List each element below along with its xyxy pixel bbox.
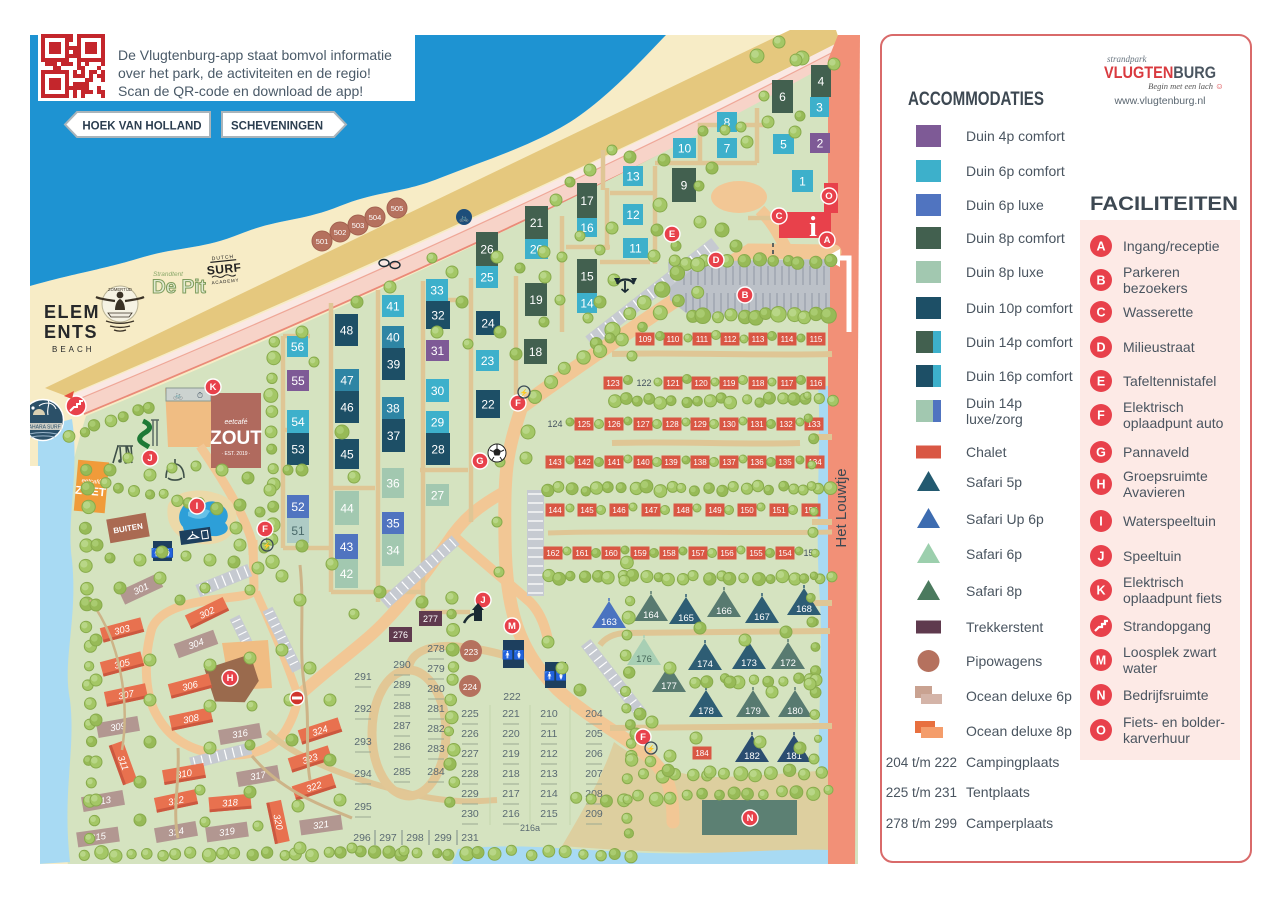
svg-text:I: I: [1099, 515, 1102, 529]
svg-text:E: E: [1097, 375, 1105, 389]
svg-text:204 t/m 222: 204 t/m 222: [886, 755, 957, 770]
svg-text:45: 45: [340, 448, 354, 462]
svg-text:505: 505: [391, 204, 404, 213]
svg-text:159: 159: [633, 549, 647, 558]
svg-text:C: C: [776, 211, 783, 222]
svg-text:140: 140: [636, 458, 650, 467]
svg-text:39: 39: [387, 358, 401, 372]
svg-text:295: 295: [354, 801, 372, 813]
svg-text:54: 54: [291, 415, 305, 429]
svg-text:D: D: [713, 255, 720, 266]
svg-text:14: 14: [580, 297, 594, 311]
svg-text:176: 176: [636, 654, 652, 665]
svg-text:283: 283: [427, 743, 445, 755]
svg-text:N: N: [747, 813, 754, 824]
svg-text:C: C: [1096, 306, 1105, 320]
svg-text:24: 24: [481, 317, 495, 331]
svg-text:290: 290: [393, 659, 411, 671]
svg-text:4: 4: [818, 75, 825, 89]
svg-text:6: 6: [779, 90, 786, 104]
svg-text:207: 207: [585, 768, 603, 780]
svg-text:219: 219: [502, 748, 520, 760]
svg-text:122: 122: [636, 378, 651, 388]
svg-text:ENTS: ENTS: [44, 322, 98, 342]
svg-text:Campingplaats: Campingplaats: [966, 754, 1059, 770]
svg-text:Pipowagens: Pipowagens: [966, 653, 1042, 669]
svg-text:I: I: [196, 501, 199, 512]
svg-text:12: 12: [626, 208, 640, 222]
svg-text:Ocean deluxe 8p: Ocean deluxe 8p: [966, 723, 1072, 739]
svg-text:Tafeltennistafel: Tafeltennistafel: [1123, 373, 1216, 389]
svg-text:135: 135: [778, 458, 792, 467]
svg-text:130: 130: [722, 420, 736, 429]
svg-text:Milieustraat: Milieustraat: [1123, 339, 1195, 355]
svg-text:299: 299: [434, 832, 452, 844]
svg-text:F: F: [515, 398, 521, 409]
svg-text:46: 46: [340, 401, 354, 415]
svg-text:B: B: [1096, 274, 1105, 288]
svg-text:168: 168: [796, 604, 812, 615]
svg-text:114: 114: [781, 335, 794, 344]
svg-text:224: 224: [463, 682, 477, 692]
svg-text:209: 209: [585, 808, 603, 820]
svg-text:Safari 6p: Safari 6p: [966, 546, 1022, 562]
svg-text:166: 166: [716, 606, 732, 617]
svg-text:288: 288: [393, 700, 411, 712]
svg-text:214: 214: [540, 788, 558, 800]
svg-text:🚹🚺: 🚹🚺: [502, 649, 524, 660]
svg-text:Safari Up 6p: Safari Up 6p: [966, 511, 1044, 527]
svg-text:2: 2: [817, 137, 824, 151]
svg-text:285: 285: [393, 766, 411, 778]
svg-text:M: M: [508, 621, 516, 632]
svg-text:296: 296: [353, 832, 371, 844]
svg-text:213: 213: [540, 768, 558, 780]
svg-text:i: i: [809, 212, 817, 243]
svg-text:eetcafé: eetcafé: [225, 419, 248, 426]
svg-text:279: 279: [427, 663, 445, 675]
svg-text:162: 162: [546, 549, 560, 558]
svg-text:145: 145: [580, 506, 594, 515]
svg-text:D: D: [1096, 341, 1105, 355]
svg-text:Chalet: Chalet: [966, 444, 1007, 460]
svg-text:Duin 16p comfort: Duin 16p comfort: [966, 368, 1073, 384]
svg-text:Het Louwtje: Het Louwtje: [833, 468, 850, 547]
svg-text:128: 128: [665, 420, 679, 429]
svg-text:3: 3: [816, 101, 823, 115]
svg-text:123: 123: [606, 379, 620, 388]
svg-text:🚲: 🚲: [173, 391, 183, 400]
svg-text:177: 177: [661, 681, 677, 692]
svg-text:298: 298: [406, 832, 424, 844]
svg-text:Ocean deluxe 6p: Ocean deluxe 6p: [966, 688, 1072, 704]
svg-text:Elektrisch: Elektrisch: [1123, 574, 1184, 590]
svg-text:G: G: [476, 456, 483, 467]
svg-text:Avavieren: Avavieren: [1123, 484, 1185, 500]
svg-text:131: 131: [750, 420, 764, 429]
svg-text:284: 284: [427, 766, 445, 778]
svg-text:125: 125: [577, 420, 591, 429]
svg-text:Safari 8p: Safari 8p: [966, 583, 1022, 599]
svg-text:17: 17: [580, 194, 594, 208]
svg-text:35: 35: [386, 517, 400, 531]
svg-text:116: 116: [810, 379, 823, 388]
svg-text:F: F: [640, 732, 646, 743]
svg-text:223: 223: [464, 647, 478, 657]
svg-text:109: 109: [638, 335, 652, 344]
svg-text:B: B: [742, 290, 749, 301]
svg-text:FACILITEITEN: FACILITEITEN: [1090, 193, 1238, 215]
svg-text:Strandopgang: Strandopgang: [1123, 618, 1211, 634]
svg-text:147: 147: [644, 506, 658, 515]
svg-text:321: 321: [312, 819, 329, 832]
svg-text:N: N: [1096, 689, 1105, 703]
svg-text:41: 41: [386, 300, 400, 314]
svg-text:218: 218: [502, 768, 520, 780]
svg-text:157: 157: [691, 549, 705, 558]
svg-text:De Pit: De Pit: [152, 277, 207, 298]
svg-text:47: 47: [340, 374, 354, 388]
svg-text:Trekkerstent: Trekkerstent: [966, 619, 1043, 635]
svg-text:Tentplaats: Tentplaats: [966, 784, 1030, 800]
svg-text:281: 281: [427, 703, 445, 715]
svg-text:230: 230: [461, 808, 479, 820]
svg-text:160: 160: [604, 549, 618, 558]
svg-text:ZOUT: ZOUT: [210, 428, 262, 449]
svg-text:ZOMERTIJD: ZOMERTIJD: [108, 287, 132, 292]
svg-text:502: 502: [334, 228, 347, 237]
svg-text:293: 293: [354, 736, 372, 748]
svg-text:Speeltuin: Speeltuin: [1123, 548, 1181, 564]
svg-text:H: H: [1096, 478, 1105, 492]
svg-text:117: 117: [781, 379, 794, 388]
svg-text:⏱: ⏱: [197, 391, 203, 400]
svg-text:⚡: ⚡: [647, 744, 656, 753]
svg-text:Safari 5p: Safari 5p: [966, 474, 1022, 490]
svg-text:172: 172: [780, 658, 796, 669]
svg-text:ELEM: ELEM: [44, 302, 100, 322]
svg-text:151: 151: [772, 506, 786, 515]
svg-text:52: 52: [291, 500, 305, 514]
svg-text:231: 231: [461, 832, 479, 844]
svg-text:19: 19: [529, 293, 543, 307]
svg-text:40: 40: [386, 331, 400, 345]
svg-text:161: 161: [575, 549, 589, 558]
svg-text:167: 167: [754, 612, 770, 623]
svg-text:144: 144: [548, 506, 562, 515]
svg-text:226: 226: [461, 728, 479, 740]
svg-text:222: 222: [503, 691, 521, 703]
svg-text:141: 141: [607, 458, 621, 467]
svg-text:· EST. 2019 ·: · EST. 2019 ·: [221, 451, 251, 457]
svg-text:oplaadpunt auto: oplaadpunt auto: [1123, 415, 1224, 431]
svg-text:oplaadpunt fiets: oplaadpunt fiets: [1123, 590, 1222, 606]
svg-text:luxe/zorg: luxe/zorg: [966, 411, 1023, 427]
svg-text:280: 280: [427, 683, 445, 695]
svg-text:15: 15: [580, 270, 594, 284]
svg-text:⚡: ⚡: [520, 388, 529, 397]
svg-text:504: 504: [369, 213, 382, 222]
svg-text:163: 163: [601, 617, 617, 628]
svg-text:23: 23: [481, 354, 495, 368]
svg-text:139: 139: [664, 458, 678, 467]
svg-text:Duin 6p comfort: Duin 6p comfort: [966, 163, 1065, 179]
svg-text:112: 112: [724, 335, 737, 344]
svg-text:36: 36: [386, 477, 400, 491]
svg-text:K: K: [210, 382, 217, 393]
svg-text:178: 178: [698, 706, 714, 717]
svg-text:Loosplek zwart: Loosplek zwart: [1123, 644, 1216, 660]
svg-text:297: 297: [379, 832, 397, 844]
svg-text:278 t/m 299: 278 t/m 299: [886, 816, 957, 831]
svg-text:38: 38: [386, 402, 400, 416]
svg-text:H: H: [227, 673, 234, 684]
svg-text:210: 210: [540, 708, 558, 720]
svg-text:Parkeren: Parkeren: [1123, 264, 1180, 280]
svg-text:31: 31: [431, 344, 445, 358]
svg-text:48: 48: [340, 324, 354, 338]
svg-text:F: F: [1097, 409, 1105, 423]
svg-text:143: 143: [548, 458, 562, 467]
svg-text:13: 13: [626, 170, 640, 184]
svg-text:Duin 8p luxe: Duin 8p luxe: [966, 264, 1044, 280]
svg-text:215: 215: [540, 808, 558, 820]
svg-text:F: F: [262, 524, 268, 535]
svg-text:136: 136: [750, 458, 764, 467]
svg-text:BEACH: BEACH: [52, 345, 95, 354]
svg-text:Begin met een lach ☺: Begin met een lach ☺: [1148, 81, 1224, 91]
svg-text:O: O: [1096, 724, 1106, 738]
svg-text:over het park, de activiteiten: over het park, de activiteiten en de reg…: [118, 65, 371, 81]
svg-text:33: 33: [430, 284, 444, 298]
svg-text:289: 289: [393, 679, 411, 691]
svg-text:286: 286: [393, 741, 411, 753]
svg-text:148: 148: [676, 506, 690, 515]
svg-text:ACCOMMODATIES: ACCOMMODATIES: [908, 88, 1044, 110]
svg-text:Duin 6p luxe: Duin 6p luxe: [966, 197, 1044, 213]
svg-text:294: 294: [354, 768, 372, 780]
svg-text:217: 217: [502, 788, 520, 800]
svg-text:158: 158: [662, 549, 676, 558]
svg-text:132: 132: [779, 420, 793, 429]
svg-text:29: 29: [431, 416, 445, 430]
svg-text:110: 110: [667, 335, 680, 344]
svg-text:204: 204: [585, 708, 603, 720]
svg-text:VLUGTENBURG: VLUGTENBURG: [1104, 63, 1216, 82]
svg-text:278: 278: [427, 643, 445, 655]
svg-text:37: 37: [387, 429, 401, 443]
svg-text:179: 179: [745, 706, 761, 717]
svg-text:53: 53: [291, 443, 305, 457]
svg-text:124: 124: [547, 419, 562, 429]
svg-text:127: 127: [636, 420, 650, 429]
svg-text:42: 42: [340, 567, 354, 581]
svg-text:27: 27: [431, 489, 445, 503]
svg-text:55: 55: [291, 374, 305, 388]
svg-text:164: 164: [643, 610, 659, 621]
svg-text:319: 319: [218, 826, 236, 839]
svg-text:SCHEVENINGEN: SCHEVENINGEN: [231, 121, 323, 133]
svg-text:115: 115: [810, 335, 823, 344]
svg-text:18: 18: [529, 345, 543, 359]
svg-text:www.vlugtenburg.nl: www.vlugtenburg.nl: [1113, 95, 1205, 107]
svg-text:154: 154: [778, 549, 792, 558]
svg-text:E: E: [669, 229, 675, 240]
svg-text:229: 229: [461, 788, 479, 800]
svg-text:28: 28: [431, 443, 445, 457]
svg-text:Groepsruimte: Groepsruimte: [1123, 468, 1208, 484]
svg-text:Duin 14p comfort: Duin 14p comfort: [966, 334, 1073, 350]
svg-text:Ingang/receptie: Ingang/receptie: [1123, 238, 1220, 254]
svg-text:118: 118: [752, 379, 765, 388]
svg-text:43: 43: [340, 540, 354, 554]
svg-text:120: 120: [694, 379, 708, 388]
svg-text:J: J: [147, 453, 152, 464]
svg-text:51: 51: [291, 524, 305, 538]
svg-text:291: 291: [354, 671, 372, 683]
svg-text:🚲: 🚲: [459, 214, 469, 223]
svg-text:225: 225: [461, 708, 479, 720]
svg-text:184: 184: [695, 749, 709, 758]
svg-text:212: 212: [540, 748, 558, 760]
svg-text:30: 30: [431, 384, 445, 398]
svg-text:SAHARA SURF: SAHARA SURF: [25, 425, 60, 431]
svg-text:water: water: [1122, 660, 1158, 676]
svg-text:211: 211: [541, 728, 558, 740]
svg-text:Duin 10p comfort: Duin 10p comfort: [966, 300, 1073, 316]
svg-text:1: 1: [799, 175, 806, 189]
svg-text:10: 10: [678, 142, 692, 156]
svg-text:34: 34: [386, 544, 400, 558]
svg-text:227: 227: [461, 748, 479, 760]
svg-text:Scan de QR-code en download de: Scan de QR-code en download de app!: [118, 83, 363, 99]
svg-text:5: 5: [780, 138, 787, 152]
svg-text:156: 156: [720, 549, 734, 558]
svg-text:De Vlugtenburg-app staat bomvo: De Vlugtenburg-app staat bomvol informat…: [118, 47, 392, 63]
svg-text:216: 216: [502, 808, 520, 820]
svg-text:111: 111: [696, 335, 709, 344]
svg-text:216a: 216a: [520, 823, 540, 833]
svg-text:113: 113: [752, 335, 765, 344]
svg-text:503: 503: [352, 221, 365, 230]
svg-text:bezoekers: bezoekers: [1123, 280, 1188, 296]
svg-text:Duin 4p comfort: Duin 4p comfort: [966, 128, 1065, 144]
svg-text:287: 287: [393, 720, 411, 732]
svg-text:O: O: [825, 191, 832, 202]
svg-text:56: 56: [291, 340, 305, 354]
svg-text:318: 318: [222, 797, 239, 809]
svg-text:220: 220: [502, 728, 520, 740]
svg-text:126: 126: [607, 420, 621, 429]
svg-text:Wasserette: Wasserette: [1123, 304, 1193, 320]
svg-text:9: 9: [681, 179, 688, 193]
svg-text:J: J: [480, 595, 485, 606]
svg-text:44: 44: [340, 502, 354, 516]
svg-text:Elektrisch: Elektrisch: [1123, 399, 1184, 415]
svg-text:205: 205: [585, 728, 603, 740]
svg-text:Bedrijfsruimte: Bedrijfsruimte: [1123, 687, 1209, 703]
svg-text:A: A: [1096, 240, 1105, 254]
svg-text:⚡: ⚡: [263, 541, 272, 550]
svg-text:121: 121: [666, 379, 680, 388]
svg-text:J: J: [1098, 550, 1105, 564]
svg-text:Waterspeeltuin: Waterspeeltuin: [1123, 513, 1216, 529]
svg-text:7: 7: [724, 142, 731, 156]
svg-text:292: 292: [354, 703, 372, 715]
svg-text:149: 149: [708, 506, 722, 515]
svg-text:K: K: [1096, 584, 1105, 598]
svg-text:225 t/m 231: 225 t/m 231: [886, 785, 957, 800]
svg-text:Duin 8p comfort: Duin 8p comfort: [966, 230, 1065, 246]
svg-text:M: M: [1096, 654, 1106, 668]
svg-text:501: 501: [316, 237, 329, 246]
svg-text:Camperplaats: Camperplaats: [966, 815, 1053, 831]
svg-text:282: 282: [427, 723, 445, 735]
svg-text:138: 138: [693, 458, 707, 467]
svg-text:G: G: [1096, 446, 1106, 460]
svg-text:155: 155: [749, 549, 763, 558]
svg-text:137: 137: [722, 458, 736, 467]
svg-text:142: 142: [577, 458, 591, 467]
svg-text:228: 228: [461, 768, 479, 780]
svg-text:A: A: [824, 235, 831, 246]
svg-text:25: 25: [480, 271, 494, 285]
svg-text:11: 11: [629, 242, 642, 256]
svg-text:Fiets- en bolder-: Fiets- en bolder-: [1123, 714, 1225, 730]
svg-text:221: 221: [502, 708, 520, 720]
svg-text:129: 129: [693, 420, 707, 429]
svg-text:HOEK VAN HOLLAND: HOEK VAN HOLLAND: [82, 121, 201, 133]
svg-text:karverhuur: karverhuur: [1123, 730, 1190, 746]
svg-text:277: 277: [423, 614, 438, 624]
svg-text:146: 146: [612, 506, 626, 515]
svg-text:206: 206: [585, 748, 603, 760]
svg-text:150: 150: [740, 506, 754, 515]
svg-text:173: 173: [741, 658, 757, 669]
svg-text:119: 119: [723, 379, 736, 388]
svg-text:Pannaveld: Pannaveld: [1123, 444, 1189, 460]
svg-text:Duin 14p: Duin 14p: [966, 395, 1022, 411]
svg-text:21: 21: [530, 216, 544, 230]
svg-text:165: 165: [678, 613, 694, 624]
svg-text:22: 22: [481, 398, 495, 412]
svg-text:32: 32: [431, 309, 445, 323]
svg-text:174: 174: [697, 659, 713, 670]
svg-text:182: 182: [744, 751, 760, 762]
svg-text:276: 276: [393, 630, 408, 640]
svg-text:180: 180: [787, 706, 803, 717]
